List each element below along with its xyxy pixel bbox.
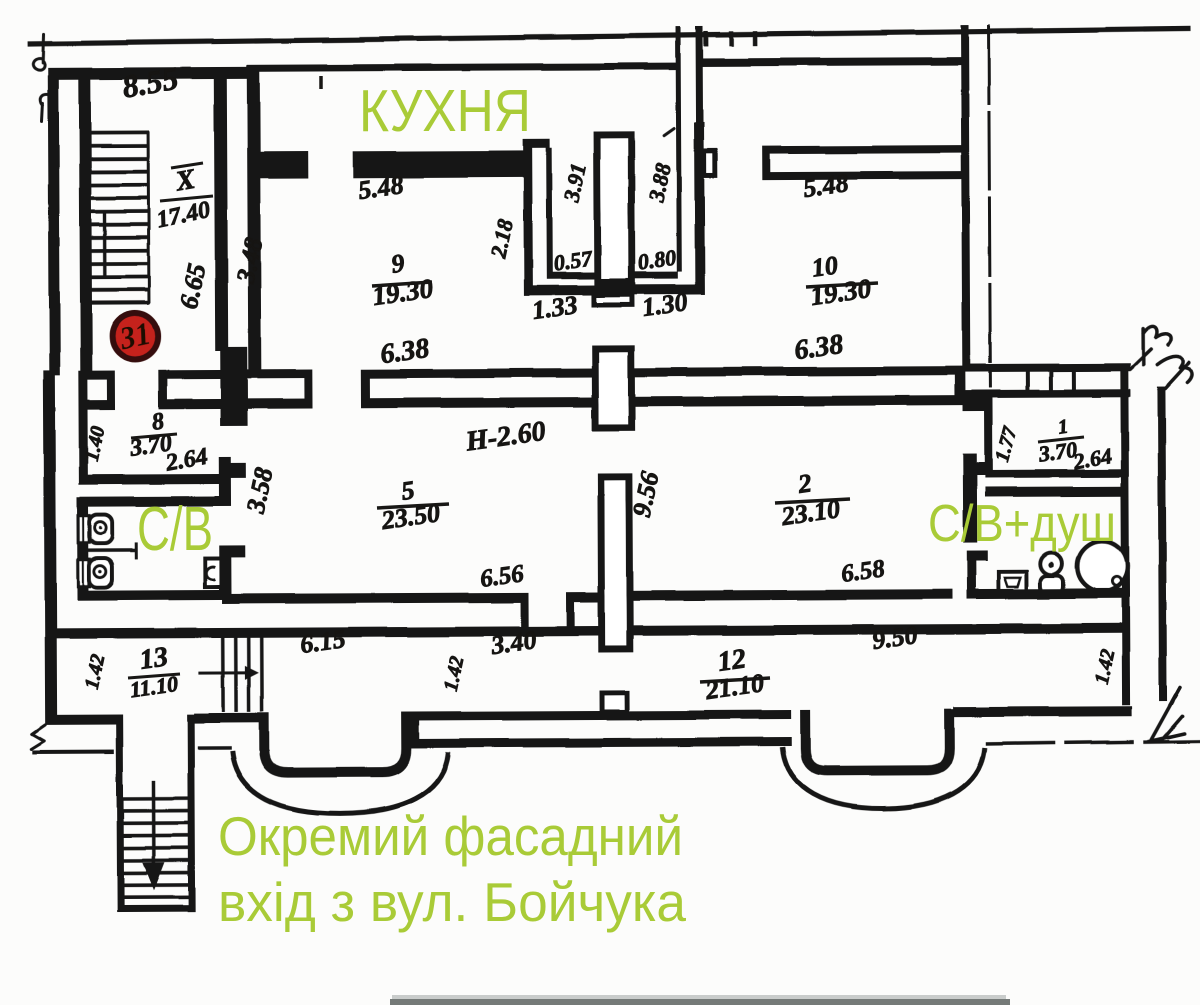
svg-text:Окремий фасадний: Окремий фасадний xyxy=(218,805,683,867)
svg-text:13: 13 xyxy=(138,641,170,676)
svg-text:С/В: С/В xyxy=(137,495,213,564)
svg-text:КУХНЯ: КУХНЯ xyxy=(359,78,531,144)
svg-text:вхід з вул. Бойчука: вхід з вул. Бойчука xyxy=(218,871,686,933)
svg-text:0.80: 0.80 xyxy=(636,245,678,275)
svg-text:С/В+душ: С/В+душ xyxy=(928,495,1116,553)
